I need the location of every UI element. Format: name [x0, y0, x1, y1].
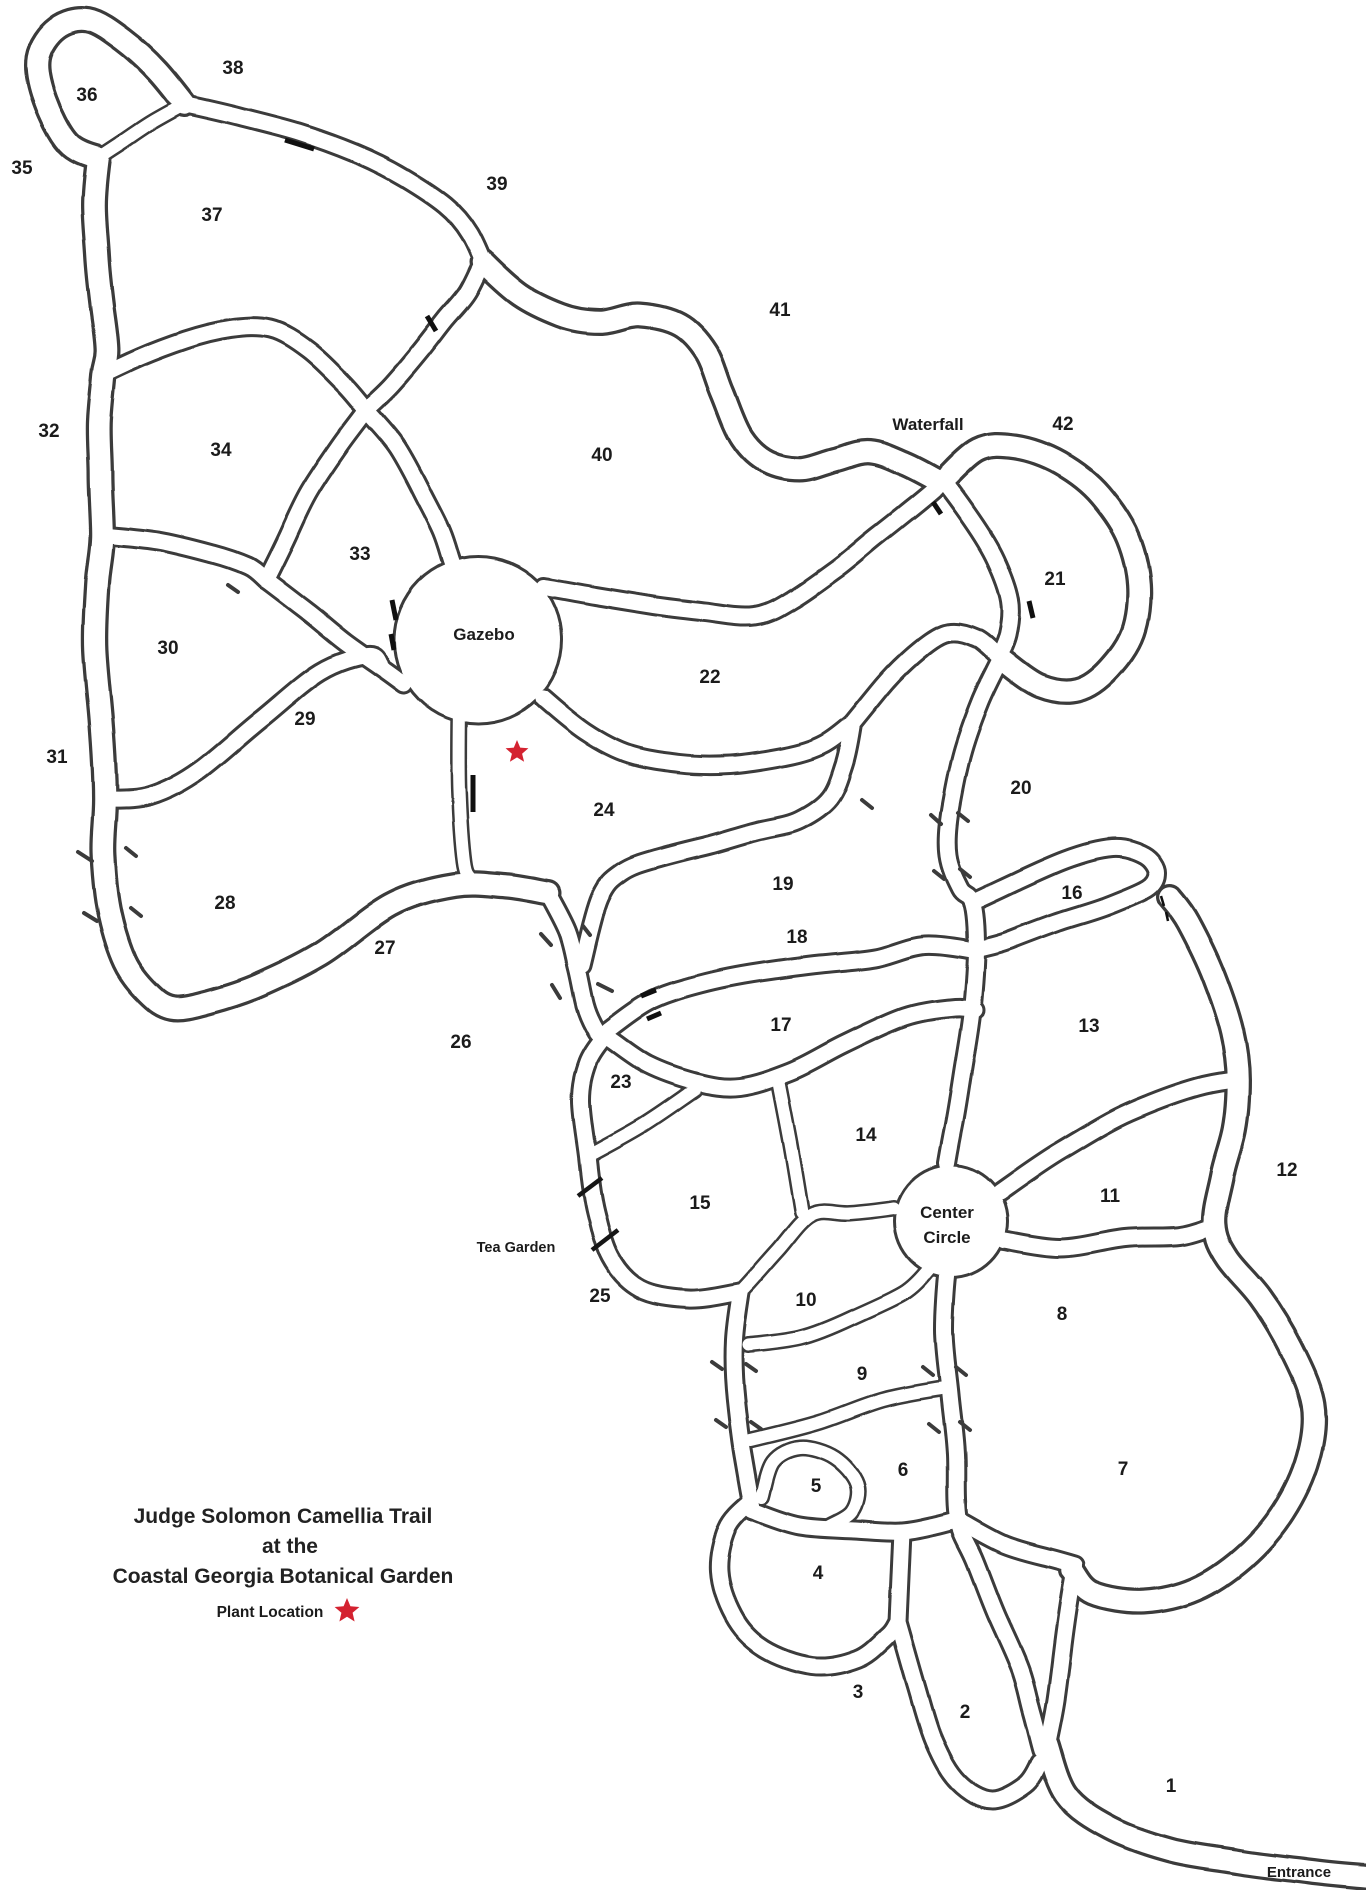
svg-text:18: 18	[786, 927, 807, 948]
svg-text:38: 38	[222, 58, 243, 79]
svg-text:39: 39	[486, 174, 507, 195]
svg-text:2: 2	[960, 1702, 971, 1723]
svg-text:Center: Center	[920, 1203, 974, 1222]
svg-text:20: 20	[1010, 778, 1031, 799]
svg-text:25: 25	[589, 1286, 611, 1307]
svg-text:36: 36	[76, 85, 97, 106]
svg-text:10: 10	[795, 1290, 816, 1311]
svg-text:24: 24	[593, 800, 615, 821]
svg-text:9: 9	[857, 1364, 868, 1385]
svg-text:33: 33	[349, 544, 370, 565]
svg-text:31: 31	[46, 747, 68, 768]
svg-text:30: 30	[157, 638, 178, 659]
svg-text:32: 32	[38, 421, 59, 442]
svg-text:14: 14	[855, 1125, 877, 1146]
svg-text:3: 3	[853, 1682, 864, 1703]
svg-text:at the: at the	[262, 1535, 318, 1558]
svg-text:42: 42	[1052, 414, 1073, 435]
svg-text:22: 22	[699, 667, 720, 688]
svg-text:Plant Location: Plant Location	[217, 1604, 324, 1621]
svg-text:12: 12	[1276, 1160, 1297, 1181]
svg-text:40: 40	[591, 445, 612, 466]
svg-text:26: 26	[450, 1032, 471, 1053]
svg-text:13: 13	[1078, 1016, 1099, 1037]
svg-text:34: 34	[210, 440, 232, 461]
svg-text:11: 11	[1100, 1186, 1121, 1207]
svg-text:Gazebo: Gazebo	[453, 625, 514, 644]
svg-text:Entrance: Entrance	[1267, 1864, 1331, 1881]
svg-text:35: 35	[11, 158, 33, 179]
svg-text:1: 1	[1166, 1776, 1177, 1797]
svg-text:7: 7	[1118, 1459, 1129, 1480]
svg-text:37: 37	[201, 205, 222, 226]
svg-text:8: 8	[1057, 1304, 1068, 1325]
svg-text:Circle: Circle	[923, 1228, 970, 1247]
svg-text:Coastal Georgia Botanical Gard: Coastal Georgia Botanical Garden	[113, 1565, 454, 1588]
svg-text:16: 16	[1061, 883, 1082, 904]
svg-text:5: 5	[811, 1476, 822, 1497]
svg-text:28: 28	[214, 893, 235, 914]
svg-text:Judge Solomon Camellia Trail: Judge Solomon Camellia Trail	[134, 1505, 433, 1528]
svg-text:4: 4	[813, 1563, 824, 1584]
svg-text:23: 23	[610, 1072, 631, 1093]
svg-text:6: 6	[898, 1460, 909, 1481]
svg-text:27: 27	[374, 938, 395, 959]
svg-text:41: 41	[769, 300, 791, 321]
svg-text:Tea Garden: Tea Garden	[477, 1240, 556, 1256]
svg-text:Waterfall: Waterfall	[892, 415, 963, 434]
svg-text:29: 29	[294, 709, 315, 730]
svg-text:21: 21	[1044, 569, 1066, 590]
svg-text:15: 15	[689, 1193, 711, 1214]
svg-text:19: 19	[772, 874, 793, 895]
svg-text:17: 17	[770, 1015, 791, 1036]
